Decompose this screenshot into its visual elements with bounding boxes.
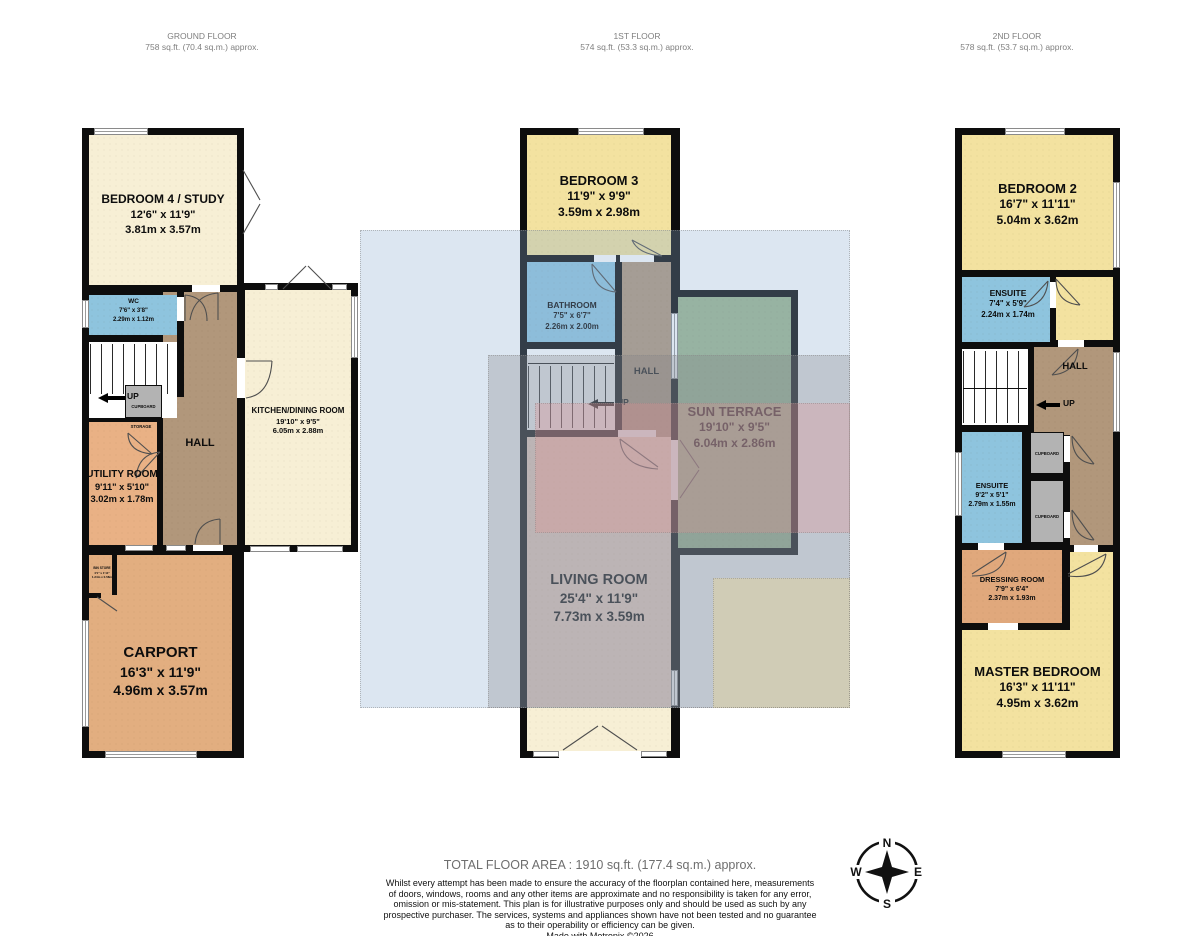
french-door-opening xyxy=(559,751,641,758)
door-arc xyxy=(281,264,333,290)
carport-side-opening xyxy=(82,620,89,727)
up-label-second: UP xyxy=(1063,398,1085,409)
door-opening xyxy=(237,358,245,398)
door-arc xyxy=(95,595,119,613)
up-arrow-icon xyxy=(1036,400,1060,410)
room-label-wc: WC 7'6" x 3'8" 2.29m x 1.12m xyxy=(89,297,178,326)
room-dim-metric: 4.96m x 3.57m xyxy=(89,681,232,699)
door-opening xyxy=(988,623,1018,630)
door-arc xyxy=(1054,277,1082,307)
cupboard-label-ground: CUPBOARD xyxy=(125,404,162,410)
window xyxy=(533,751,559,757)
room-dim-imperial: 7'9" x 6'4" xyxy=(960,585,1064,594)
room-dim-metric: 3.02m x 1.78m xyxy=(82,493,162,505)
room-name: UTILITY ROOM xyxy=(82,468,162,481)
room-label-carport: CARPORT 16'3" x 11'9" 4.96m x 3.57m xyxy=(89,643,232,700)
door-opening xyxy=(192,285,220,292)
disclaimer-line: Whilst every attempt has been made to en… xyxy=(0,878,1200,889)
door-arc xyxy=(194,518,222,546)
floor-title: 1ST FLOOR xyxy=(527,31,747,42)
total-floor-area: TOTAL FLOOR AREA : 1910 sq.ft. (177.4 sq… xyxy=(0,858,1200,872)
room-dim-imperial: 9'2" x 5'1" xyxy=(958,491,1026,500)
cupboard-a-label: CUPBOARD xyxy=(1030,451,1064,457)
window xyxy=(641,751,667,757)
room-name: ENSUITE xyxy=(958,481,1026,491)
window xyxy=(166,545,186,551)
floor-area: 578 sq.ft. (53.7 sq.m.) approx. xyxy=(907,42,1127,53)
door-arc xyxy=(1066,552,1108,582)
up-arrow-icon xyxy=(98,393,125,403)
arrow-bar xyxy=(1045,403,1060,407)
window xyxy=(125,545,153,551)
storage-label: STORAGE xyxy=(125,424,157,430)
room-dim-imperial: 16'3" x 11'9" xyxy=(89,663,232,681)
room-name: MASTER BEDROOM xyxy=(962,663,1113,680)
disclaimer: Whilst every attempt has been made to en… xyxy=(0,878,1200,936)
arrow-head xyxy=(98,393,108,403)
window xyxy=(1113,182,1120,268)
window xyxy=(332,284,347,290)
door-arc xyxy=(1070,508,1096,544)
room-label-master: MASTER BEDROOM 16'3" x 11'11" 4.95m x 3.… xyxy=(962,663,1113,712)
hall-label-second: HALL xyxy=(1040,361,1110,374)
carport-opening xyxy=(105,751,197,758)
door-arc xyxy=(245,360,273,400)
room-dim-imperial: 19'10" x 9'5" xyxy=(245,417,351,427)
floor-title: GROUND FLOOR xyxy=(92,31,312,42)
room-dim-imperial: 7'6" x 3'8" xyxy=(89,307,178,316)
overlay-pink xyxy=(535,403,850,533)
room-label-kitchen: KITCHEN/DINING ROOM 19'10" x 9'5" 6.05m … xyxy=(245,406,351,436)
room-label-bedroom2: BEDROOM 2 16'7" x 11'11" 5.04m x 3.62m xyxy=(962,180,1113,229)
floor-area: 758 sq.ft. (70.4 sq.m.) approx. xyxy=(92,42,312,53)
room-name: KITCHEN/DINING ROOM xyxy=(245,406,351,417)
room-name: BEDROOM 4 / STUDY xyxy=(89,192,237,208)
up-label-ground: UP xyxy=(127,391,149,402)
room-dim-metric: 6.05m x 2.88m xyxy=(245,426,351,436)
room-dim-metric: 3.59m x 2.98m xyxy=(527,205,671,221)
compass-north: N xyxy=(883,836,892,850)
room-dim-metric: 2.79m x 1.55m xyxy=(958,500,1026,509)
window xyxy=(82,300,89,328)
door-arc xyxy=(1070,434,1096,468)
room-label-ensuite1: ENSUITE 7'4" x 5'9" 2.24m x 1.74m xyxy=(962,288,1054,320)
first-floor-header: 1ST FLOOR 574 sq.ft. (53.3 sq.m.) approx… xyxy=(527,31,747,52)
ground-floor-header: GROUND FLOOR 758 sq.ft. (70.4 sq.m.) app… xyxy=(92,31,312,52)
room-dim-metric: 2.24m x 1.74m xyxy=(962,310,1054,320)
window xyxy=(94,128,148,135)
door-opening xyxy=(1058,340,1084,347)
room-label-utility: UTILITY ROOM 9'11" x 5'10" 3.02m x 1.78m xyxy=(82,468,162,506)
window xyxy=(578,128,644,135)
room-dim-imperial: 16'7" x 11'11" xyxy=(962,197,1113,213)
floorplan-page: GROUND FLOOR 758 sq.ft. (70.4 sq.m.) app… xyxy=(0,0,1200,936)
room-name: CARPORT xyxy=(89,643,232,663)
cupboard-b-label: CUPBOARD xyxy=(1030,514,1064,520)
room-dim-imperial: 9'11" x 5'10" xyxy=(82,481,162,493)
room-dim-metric: 4.95m x 3.62m xyxy=(962,696,1113,712)
cupboard-b xyxy=(1030,480,1064,543)
second-floor-header: 2ND FLOOR 578 sq.ft. (53.7 sq.m.) approx… xyxy=(907,31,1127,52)
stair-treads xyxy=(963,351,1027,423)
disclaimer-line: as to their operability or efficiency ca… xyxy=(0,920,1200,931)
room-label-bin-store: BIN STORE 4'1" x 1'11" 1.24m x 0.58m xyxy=(89,566,115,580)
room-name: DRESSING ROOM xyxy=(960,575,1064,585)
room-dim-metric: 1.24m x 0.58m xyxy=(89,575,115,579)
window xyxy=(1113,352,1120,432)
room-dim-metric: 2.37m x 1.93m xyxy=(960,594,1064,603)
window xyxy=(265,284,278,290)
disclaimer-line: prospective purchaser. The services, sys… xyxy=(0,910,1200,921)
room-dim-imperial: 12'6" x 11'9" xyxy=(89,208,237,223)
room-name: WC xyxy=(89,297,178,307)
stair-landing-line xyxy=(963,388,1027,389)
overlay-cream xyxy=(713,578,850,708)
room-label-bedroom4: BEDROOM 4 / STUDY 12'6" x 11'9" 3.81m x … xyxy=(89,192,237,237)
window xyxy=(1002,751,1066,758)
hall-label-ground: HALL xyxy=(163,436,237,451)
door-arc xyxy=(560,722,640,752)
arrow-head xyxy=(1036,400,1046,410)
room-label-ensuite2: ENSUITE 9'2" x 5'1" 2.79m x 1.55m xyxy=(958,481,1026,509)
credit-line: Made with Metropix ©2026 xyxy=(0,931,1200,936)
room-dim-metric: 5.04m x 3.62m xyxy=(962,213,1113,229)
arrow-bar xyxy=(107,396,125,400)
window xyxy=(250,546,290,552)
window xyxy=(1005,128,1065,135)
room-dim-imperial: 11'9" x 9'9" xyxy=(527,189,671,205)
window xyxy=(351,296,358,358)
door-opening xyxy=(1074,545,1098,552)
room-label-dressing: DRESSING ROOM 7'9" x 6'4" 2.37m x 1.93m xyxy=(960,575,1064,603)
floor-title: 2ND FLOOR xyxy=(907,31,1127,42)
room-dim-metric: 2.29m x 1.12m xyxy=(89,316,178,325)
disclaimer-line: omission or mis-statement. This plan is … xyxy=(0,899,1200,910)
floor-area: 574 sq.ft. (53.3 sq.m.) approx. xyxy=(527,42,747,53)
door-arc xyxy=(242,166,262,238)
room-name: BEDROOM 2 xyxy=(962,180,1113,197)
room-name: BEDROOM 3 xyxy=(527,172,671,189)
room-dim-imperial: 16'3" x 11'11" xyxy=(962,680,1113,696)
door-arc xyxy=(188,292,220,322)
door-opening xyxy=(978,543,1004,550)
disclaimer-line: of doors, windows, rooms and any other i… xyxy=(0,889,1200,900)
room-name: ENSUITE xyxy=(962,288,1054,299)
window xyxy=(297,546,343,552)
room-dim-metric: 3.81m x 3.57m xyxy=(89,223,237,238)
room-label-bedroom3: BEDROOM 3 11'9" x 9'9" 3.59m x 2.98m xyxy=(527,172,671,221)
door-opening xyxy=(177,297,184,321)
room-dim-imperial: 7'4" x 5'9" xyxy=(962,299,1054,309)
